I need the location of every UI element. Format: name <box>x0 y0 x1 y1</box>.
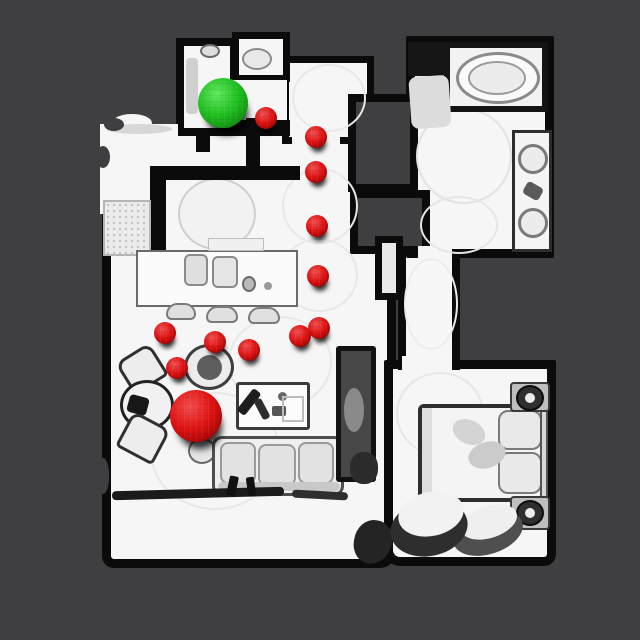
waypoint-sphere-11 <box>166 357 188 379</box>
bed-foot-shade <box>422 408 432 498</box>
door-niche <box>375 236 403 300</box>
bathtub-inner <box>468 61 526 95</box>
waypoint-sphere-6 <box>308 317 330 339</box>
agent-sphere-red-large <box>170 390 222 442</box>
dining-chair-3 <box>248 307 280 324</box>
kitchen-small-shelf <box>208 238 264 251</box>
waypoint-sphere-2 <box>305 126 327 148</box>
waypoint-sphere-4 <box>306 215 328 237</box>
couch-cushion-3 <box>298 442 334 484</box>
kitchen-wall-horizontal <box>150 166 300 180</box>
waypoint-sphere-8 <box>238 339 260 361</box>
bed-pillow-1 <box>498 410 542 450</box>
coffee-table-tray <box>282 396 304 422</box>
green-room-shade <box>186 58 198 114</box>
bath-gray-patch <box>408 75 452 130</box>
scan-circle-bath-2 <box>420 196 498 254</box>
corridor-dark-blob <box>350 452 378 484</box>
kitchen-wall-vertical <box>150 166 166 254</box>
counter-cushion-1 <box>184 254 208 286</box>
dining-chair-1 <box>166 303 196 320</box>
lamp-bottom-bulb <box>525 508 535 518</box>
green-room-bowl <box>200 44 220 58</box>
bed-pillow-2 <box>498 452 542 494</box>
horseshoe-chair-seat <box>197 355 222 380</box>
couch-cushion-2 <box>258 444 296 486</box>
tv-stand-object <box>344 388 364 432</box>
small-sink <box>242 48 272 70</box>
vanity-sink-bottom <box>518 208 548 238</box>
counter-dot <box>264 282 272 290</box>
counter-jar <box>242 276 256 292</box>
wall-greenroom-stub <box>196 130 210 152</box>
dining-chair-2 <box>206 306 238 323</box>
waypoint-sphere-7 <box>289 325 311 347</box>
headboard <box>540 406 548 500</box>
waypoint-sphere-1 <box>255 107 277 129</box>
waypoint-sphere-9 <box>204 331 226 353</box>
edge-bite-2 <box>96 146 110 168</box>
counter-cushion-2 <box>212 256 238 288</box>
scan-viewport[interactable] <box>0 0 640 640</box>
waypoint-sphere-5 <box>307 265 329 287</box>
edge-bite-3 <box>96 458 109 494</box>
start-sphere-green <box>198 78 248 128</box>
scan-circle-hall-top <box>292 64 366 132</box>
pantry-shelf <box>103 200 151 256</box>
waypoint-sphere-10 <box>154 322 176 344</box>
lamp-top-bulb <box>525 393 535 403</box>
waypoint-sphere-3 <box>305 161 327 183</box>
bath-dark-corner <box>408 42 450 76</box>
scan-circle-connector <box>404 258 458 350</box>
edge-bite-1 <box>104 118 124 131</box>
vanity-sink-top <box>518 144 548 174</box>
